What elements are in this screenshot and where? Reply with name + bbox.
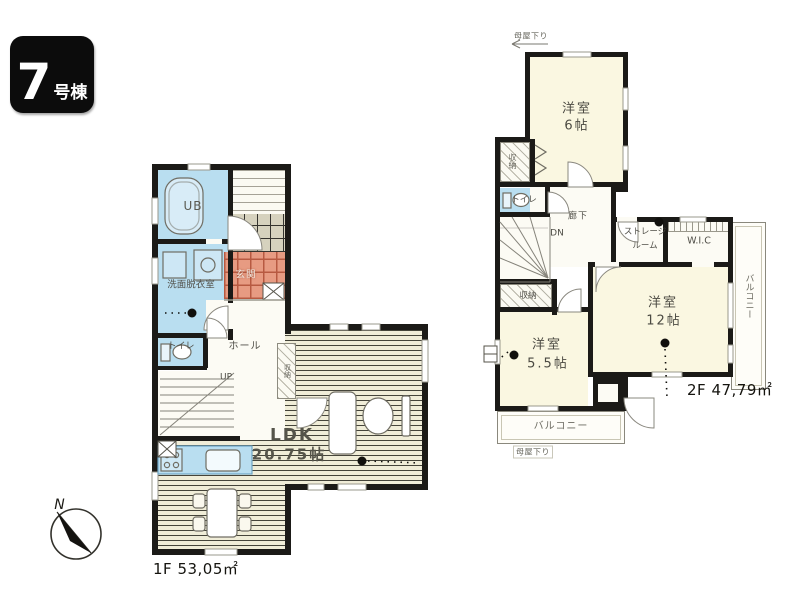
label-storage-room-2: ルーム	[632, 242, 657, 251]
label-toilet-2f: トイレ	[511, 196, 537, 205]
label-bedroom55-size: 5.5帖	[527, 358, 569, 371]
floor2-area-label: 2F 47,79㎡	[687, 379, 772, 400]
label-entrance: 玄関	[235, 270, 256, 280]
label-closet-2f-top: 収納	[508, 153, 516, 169]
label-ldk-size: 20.75帖	[252, 448, 326, 463]
label-note-top: 母屋下り	[512, 31, 550, 42]
entry-porch-tiles	[231, 214, 285, 252]
label-storage-room-1: ストレージ	[624, 228, 666, 237]
label-bedroom12-size: 12帖	[646, 315, 682, 328]
label-closet-1f: 収納	[284, 364, 291, 378]
label-washroom: 洗面脱衣室	[167, 280, 215, 290]
label-bedroom6-size: 6帖	[564, 120, 589, 133]
label-up: UP	[220, 374, 232, 383]
label-closet-2f-mid: 収納	[519, 292, 536, 301]
label-hall: ホール	[229, 342, 262, 352]
label-ldk: LDK	[270, 428, 314, 445]
building-suffix: 号棟	[53, 78, 87, 103]
entry-steps	[231, 170, 285, 214]
label-dn: DN	[550, 230, 564, 239]
room-hall	[206, 300, 285, 441]
label-bedroom55: 洋室	[532, 339, 562, 352]
label-balcony-bottom: バルコニー	[534, 422, 589, 432]
label-bedroom12: 洋室	[648, 297, 678, 310]
compass-icon	[51, 509, 101, 559]
label-toilet-1f: トイレ	[167, 343, 194, 352]
label-bedroom6: 洋室	[562, 103, 592, 116]
wic-hanger-pipe	[668, 222, 728, 232]
floor1-area-label: 1F 53,05㎡	[153, 558, 238, 579]
building-number-badge: 7 号棟	[10, 36, 94, 113]
floorplan-canvas: 7 号棟	[0, 0, 800, 600]
label-hallway: 廊下	[568, 213, 588, 222]
label-balcony-right: バルコニー	[744, 274, 753, 319]
room-stairs-2f	[500, 217, 550, 282]
compass-north-label: N	[54, 498, 65, 512]
label-ub: UB	[183, 200, 202, 212]
label-note-bottom: 母屋下り	[513, 446, 553, 459]
building-number: 7	[17, 61, 52, 104]
label-wic: W.I.C	[687, 236, 711, 246]
